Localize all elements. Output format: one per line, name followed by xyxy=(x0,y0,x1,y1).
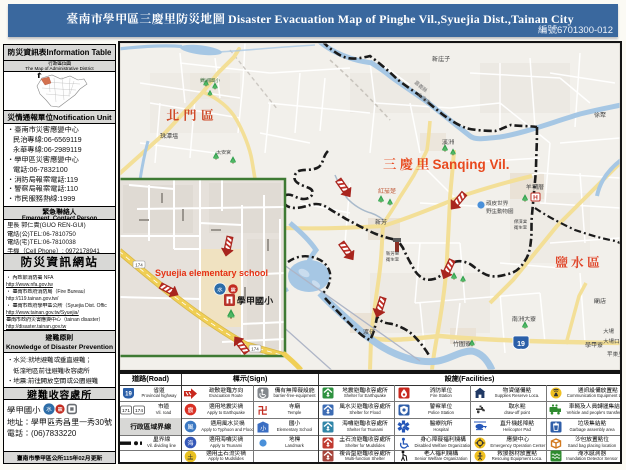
svg-text:174: 174 xyxy=(135,407,143,414)
svg-text:174: 174 xyxy=(135,263,143,269)
svg-text:新芳: 新芳 xyxy=(375,217,387,226)
svg-text:震: 震 xyxy=(187,405,193,414)
svg-text:水: 水 xyxy=(45,405,52,413)
svg-text:徐聚: 徐聚 xyxy=(594,110,606,119)
svg-text:H: H xyxy=(533,192,538,202)
svg-text:19: 19 xyxy=(517,339,525,349)
svg-text:大場: 大場 xyxy=(603,327,615,335)
svg-text:衛生室: 衛生室 xyxy=(513,225,528,231)
svg-text:錦湖國小: 錦湖國小 xyxy=(200,77,220,84)
svg-text:海: 海 xyxy=(186,438,193,447)
svg-text:小: 小 xyxy=(259,423,266,432)
svg-text:太安宮: 太安宮 xyxy=(216,149,231,156)
svg-text:新庄子: 新庄子 xyxy=(432,54,451,63)
svg-text:震: 震 xyxy=(57,406,62,413)
svg-text:Syuejia elementary school: Syuejia elementary school xyxy=(155,266,268,279)
svg-text:三慶里Sanqing Vil.: 三慶里Sanqing Vil. xyxy=(383,153,510,173)
svg-text:南洲大寮: 南洲大寮 xyxy=(511,314,536,323)
svg-text:衛生室: 衛生室 xyxy=(385,257,400,263)
svg-text:頑皮世界: 頑皮世界 xyxy=(486,199,509,207)
svg-text:19: 19 xyxy=(125,388,132,397)
svg-text:溪洲: 溪洲 xyxy=(442,137,454,146)
svg-text:土: 土 xyxy=(186,452,193,461)
svg-text:北門區: 北門區 xyxy=(166,105,219,124)
svg-text:174: 174 xyxy=(251,347,259,353)
svg-text:水: 水 xyxy=(216,286,223,294)
svg-text:廟店: 廟店 xyxy=(593,296,606,305)
svg-text:渡仔: 渡仔 xyxy=(363,327,375,336)
svg-text:竹圍寮: 竹圍寮 xyxy=(453,339,471,348)
svg-text:學甲國小: 學甲國小 xyxy=(237,294,274,307)
svg-text:大場口: 大場口 xyxy=(603,337,620,345)
svg-text:震: 震 xyxy=(230,287,235,294)
svg-text:鹽水區: 鹽水區 xyxy=(555,252,603,271)
svg-text:羊稠厝: 羊稠厝 xyxy=(526,182,544,191)
svg-text:紅茄萣: 紅茄萣 xyxy=(378,186,396,195)
svg-text:野生動物園: 野生動物園 xyxy=(486,207,514,215)
svg-text:風: 風 xyxy=(187,422,193,431)
svg-text:珠潭塭: 珠潭塭 xyxy=(160,131,178,140)
svg-text:學甲寮: 學甲寮 xyxy=(585,340,603,349)
svg-text:平東里: 平東里 xyxy=(607,350,620,358)
svg-text:171: 171 xyxy=(122,407,130,414)
